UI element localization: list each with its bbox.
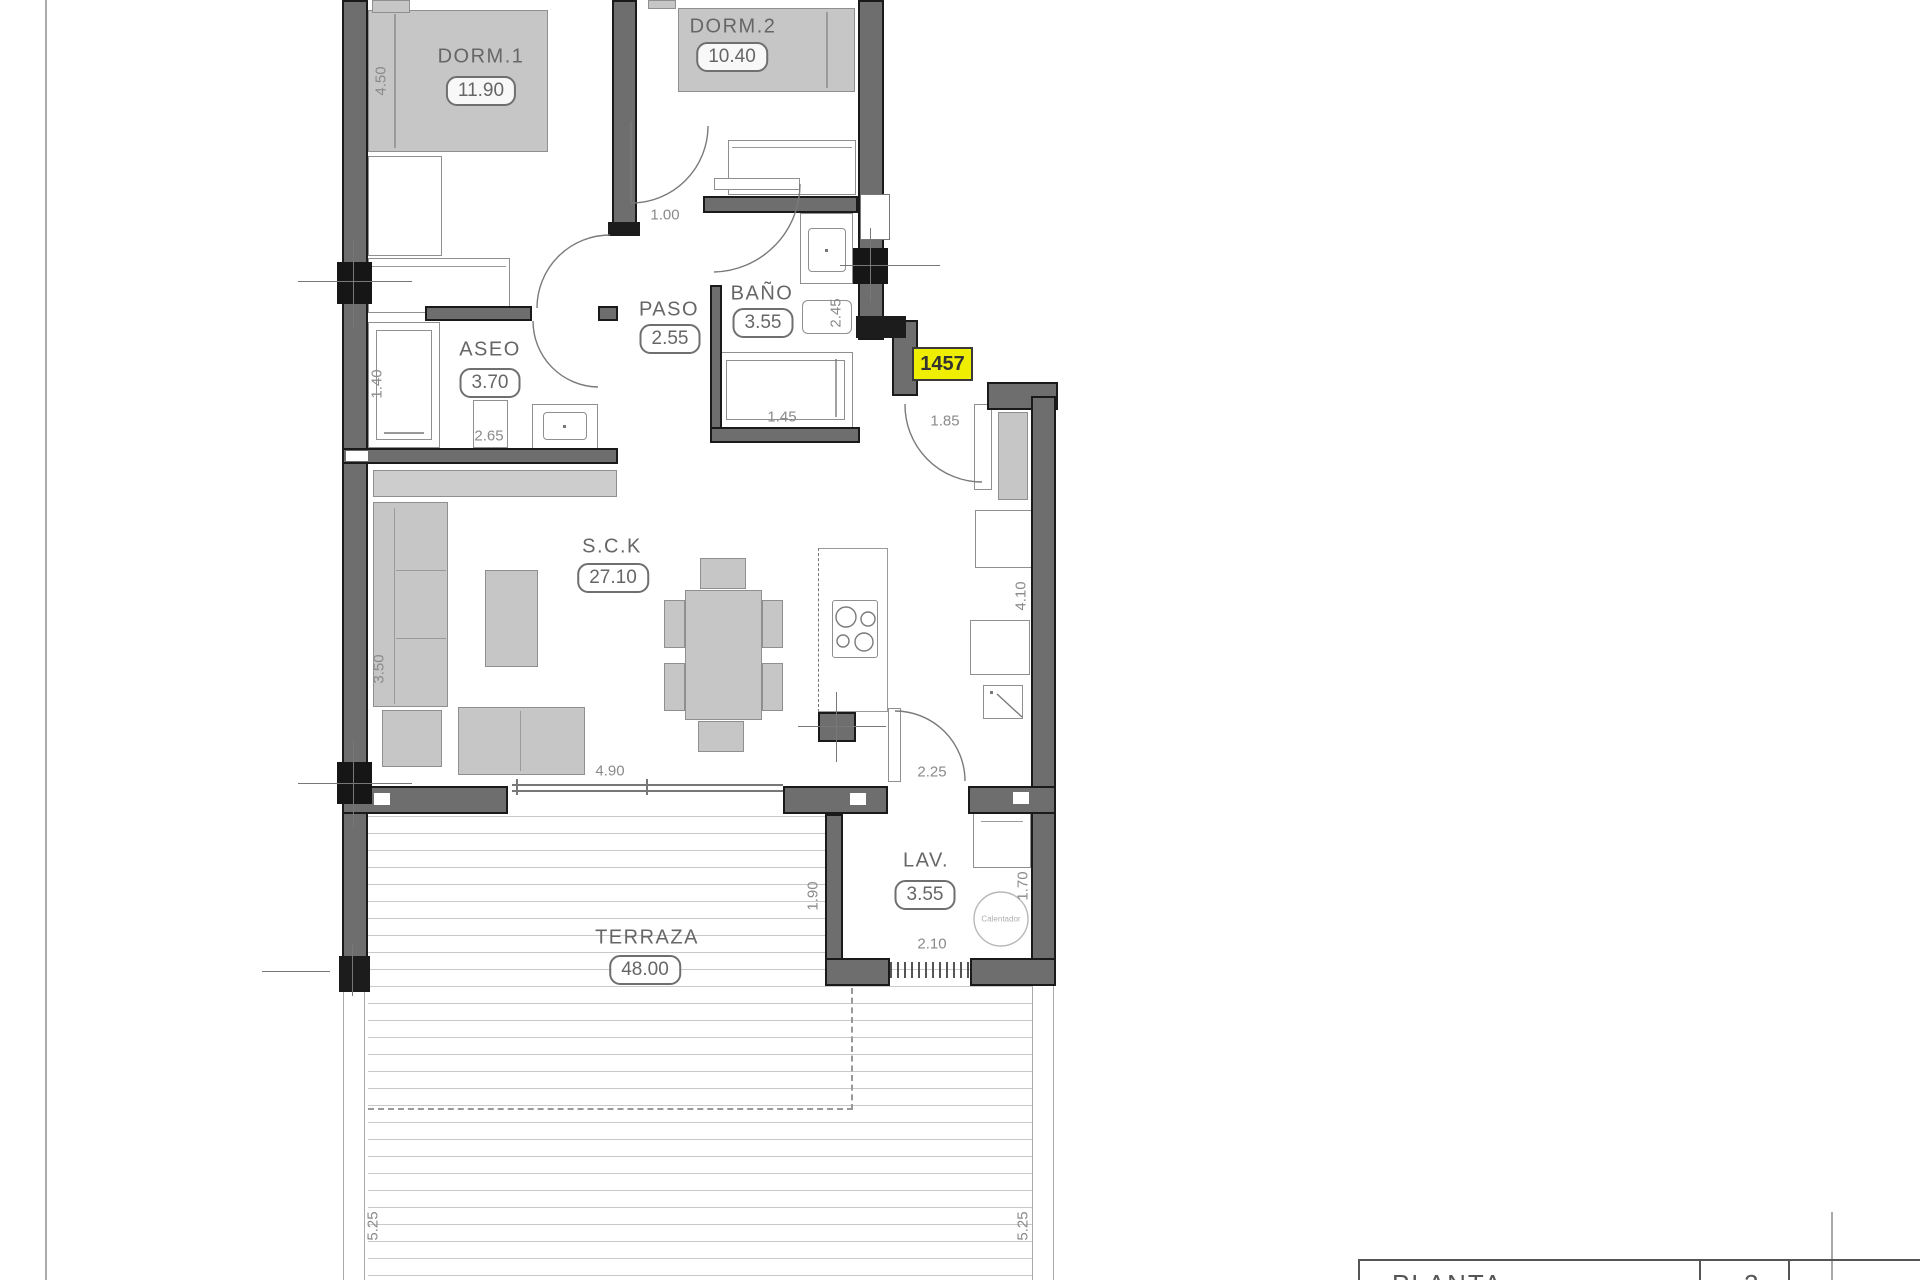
wall-bano-top	[703, 196, 858, 213]
dim-1-00: 1.00	[650, 207, 679, 224]
right-wall-edge-line	[1032, 986, 1033, 1280]
kitchen-fridge	[998, 412, 1028, 500]
wall-lav-left	[825, 814, 843, 960]
room-label-paso: PASO	[639, 299, 699, 322]
room-area-paso: 2.55	[640, 324, 701, 354]
sck-chair-left2	[664, 663, 685, 711]
wall-terrace-right	[783, 786, 888, 814]
dim-5-25-left: 5.25	[365, 1211, 382, 1240]
bano-window	[860, 194, 890, 240]
wall-cap-dorm1-divider	[608, 222, 640, 236]
title-block-divider2	[1788, 1261, 1790, 1280]
dorm2-bed-pillow-line	[826, 12, 828, 88]
dim-2-10: 2.10	[917, 936, 946, 953]
wall-lav-bottom-left	[825, 958, 890, 986]
dim-4-50: 4.50	[373, 66, 390, 95]
bano-door-leaf	[714, 178, 800, 190]
title-block-number: 2	[1744, 1269, 1760, 1280]
wall-slot-terrace-left	[374, 793, 390, 805]
room-label-lav: LAV.	[903, 850, 949, 873]
room-label-terraza: TERRAZA	[595, 927, 699, 950]
sheet-border-left	[45, 0, 47, 1280]
kitchen-counter-2	[970, 620, 1030, 675]
dorm1-wardrobe-line	[372, 266, 506, 267]
room-label-bano: BAÑO	[731, 283, 794, 306]
tie-line-v1	[353, 240, 354, 328]
sck-loveseat	[458, 707, 585, 775]
sck-sideboard	[373, 470, 617, 497]
wall-right-exterior-top	[858, 0, 884, 340]
dorm1-door-arc	[537, 235, 610, 308]
dim-2-65: 2.65	[474, 428, 503, 445]
dim-1-85: 1.85	[930, 413, 959, 430]
wall-bano-left	[710, 285, 722, 443]
aseo-shower-door-line	[384, 432, 424, 434]
room-area-dorm1: 11.90	[446, 76, 516, 106]
sck-ottoman	[382, 710, 442, 767]
lav-washer-line	[981, 821, 1023, 822]
dim-1-90: 1.90	[805, 881, 822, 910]
title-block: PLANTA 2	[1358, 1259, 1920, 1280]
room-label-dorm1: DORM.1	[438, 46, 525, 69]
sck-sofa-cushion-line2	[396, 638, 446, 639]
wall-aseo-top	[425, 306, 532, 321]
lav-vent-grille	[890, 962, 970, 978]
room-area-lav: 3.55	[895, 880, 956, 910]
wall-lav-bottom-right	[970, 958, 1056, 986]
tie-line-v3	[870, 228, 871, 302]
room-label-sck: S.C.K	[582, 536, 642, 559]
kitchen-hob	[832, 600, 878, 658]
tie-line-h1	[298, 281, 412, 282]
dorm1-bed-pillow-line	[394, 14, 396, 148]
wall-slot-kitchen-bottom	[1013, 792, 1029, 804]
wall-slot-terrace-right	[850, 793, 866, 805]
glass-door-line	[512, 784, 783, 786]
glass-door-tick2	[646, 779, 648, 795]
room-area-aseo: 3.70	[460, 368, 521, 398]
dim-1-45: 1.45	[767, 409, 796, 426]
aseo-door-arc	[533, 321, 598, 387]
tie-line-h3	[840, 265, 940, 266]
room-area-dorm2: 10.40	[696, 42, 768, 72]
sck-dining-table	[685, 590, 762, 720]
wall-aseo-bottom	[342, 448, 618, 464]
terrace-dashed-line-v	[851, 988, 853, 1110]
dorm1-nightstand	[372, 0, 410, 13]
glass-door-line2	[512, 790, 783, 792]
room-area-sck: 27.10	[577, 563, 649, 593]
title-block-divider	[1699, 1261, 1701, 1280]
pillar-line-h	[798, 726, 886, 727]
entry-door-leaf	[974, 404, 992, 490]
title-block-title: PLANTA	[1392, 1269, 1503, 1280]
sck-loveseat-divider	[520, 711, 521, 771]
unit-number-badge: 1457	[912, 347, 973, 381]
wall-aseo-top-right	[598, 306, 618, 321]
room-area-bano: 3.55	[733, 308, 794, 338]
tie-line-h4	[262, 971, 330, 972]
kitchen-counter-1	[975, 510, 1032, 568]
sck-sofa-cushion-line	[396, 570, 446, 571]
kitchen-sink-drain	[990, 691, 993, 694]
glass-door-tick	[516, 779, 518, 795]
tie-line-h2	[298, 783, 412, 784]
dorm2-door-arc	[631, 126, 708, 203]
dim-1-40: 1.40	[369, 369, 386, 398]
kitchen-sink	[983, 685, 1023, 719]
bano-sink-drain	[825, 249, 828, 252]
water-heater-label: Calentador	[981, 915, 1020, 924]
right-wall-edge-line2	[1053, 986, 1054, 1280]
left-wall-edge-line	[343, 990, 344, 1280]
floor-plan-sheet: DORM.1 11.90 DORM.2 10.40 PASO 2.55 BAÑO…	[0, 0, 1920, 1280]
tie-line-v4	[352, 944, 353, 996]
wall-peninsula-pillar	[818, 712, 856, 742]
dim-3-50: 3.50	[371, 654, 388, 683]
lav-door-leaf	[888, 708, 901, 782]
dim-1-70: 1.70	[1015, 871, 1032, 900]
wall-cap-right-top	[856, 316, 906, 338]
wall-right-exterior-lower	[1031, 396, 1056, 986]
sck-chair-bottom	[698, 721, 744, 752]
sck-chair-left1	[664, 600, 685, 648]
room-label-dorm2: DORM.2	[690, 16, 777, 39]
wall-left-exterior	[342, 0, 368, 992]
sck-chair-top	[700, 558, 746, 589]
sck-chair-right2	[762, 663, 783, 711]
tie-line-v2	[353, 740, 354, 828]
wall-slot-aseo	[346, 451, 368, 461]
wall-tie-left-upper	[337, 262, 372, 304]
sck-sofa-back-line	[394, 508, 395, 704]
dim-2-45: 2.45	[828, 298, 845, 327]
room-area-terraza: 48.00	[609, 955, 681, 985]
sck-chair-right1	[762, 600, 783, 648]
sck-coffee-table	[485, 570, 538, 667]
wall-bano-bottom	[710, 427, 860, 443]
dorm2-nightstand	[648, 0, 676, 9]
dorm2-desk-line	[732, 147, 852, 148]
aseo-sink-drain	[563, 425, 566, 428]
wall-kitchen-bottom	[968, 786, 1056, 814]
pillar-line-v	[836, 692, 837, 762]
wall-dorm1-divider	[612, 0, 637, 236]
wall-cap-left-bottom	[339, 956, 370, 992]
room-label-aseo: ASEO	[459, 339, 521, 362]
dorm1-dresser	[368, 156, 442, 256]
dim-5-25-right: 5.25	[1015, 1211, 1032, 1240]
dim-2-25: 2.25	[917, 764, 946, 781]
dim-4-10: 4.10	[1013, 581, 1030, 610]
terrace-dashed-line-h	[368, 1108, 853, 1110]
dim-4-90: 4.90	[595, 763, 624, 780]
